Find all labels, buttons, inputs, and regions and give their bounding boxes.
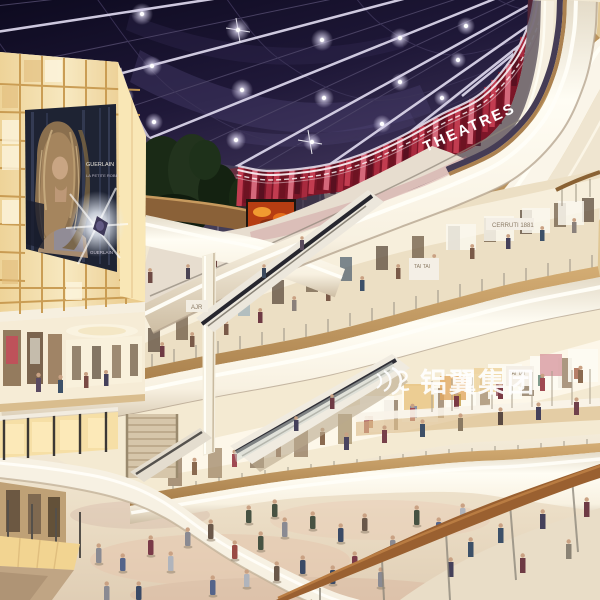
svg-text:铝翼集团: 铝翼集团 (420, 367, 536, 398)
svg-text:LA PETITE ROBE: LA PETITE ROBE (86, 173, 119, 178)
svg-text:CERRUTI 1881: CERRUTI 1881 (492, 223, 534, 229)
svg-text:GUERLAIN: GUERLAIN (90, 250, 113, 255)
svg-text:AJR: AJR (191, 305, 203, 311)
svg-text:TAI TAI: TAI TAI (414, 264, 430, 270)
svg-text:GUERLAIN: GUERLAIN (86, 162, 114, 168)
